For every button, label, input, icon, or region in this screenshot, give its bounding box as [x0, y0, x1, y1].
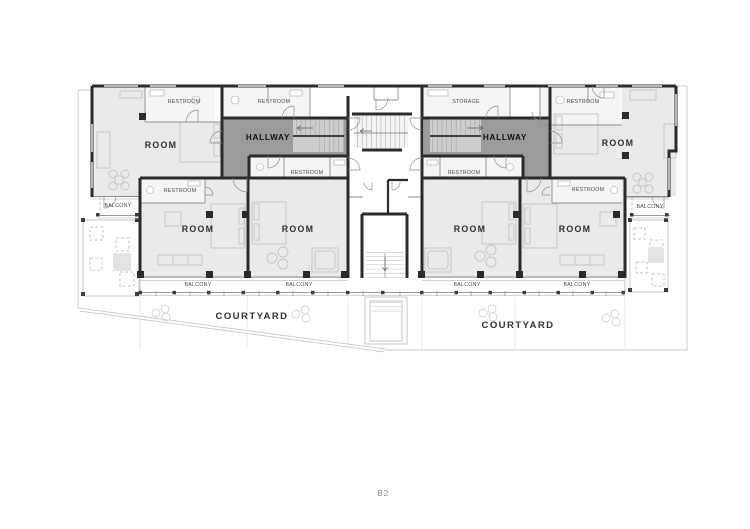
- room-label-top-right: ROOM: [602, 138, 635, 148]
- courtyard-label-left: COURTYARD: [215, 311, 288, 322]
- restroom-label-6: RESTROOM: [164, 188, 197, 194]
- restroom-label-7: RESTROOM: [572, 187, 605, 193]
- courtyard-steps: [365, 297, 407, 344]
- storage-label: STORAGE: [452, 99, 480, 105]
- restroom-label-5: RESTROOM: [448, 170, 481, 176]
- restroom-label-4: RESTROOM: [291, 170, 324, 176]
- balcony-label-a: BALCONY: [184, 282, 211, 288]
- restroom-label-2: RESTROOM: [258, 99, 291, 105]
- room-label-b: ROOM: [282, 224, 315, 234]
- balcony-label-b: BALCONY: [285, 282, 312, 288]
- balcony-label-left: BALCONY: [104, 203, 131, 209]
- room-label-top-left: ROOM: [145, 140, 178, 150]
- courtyard-label-right: COURTYARD: [481, 320, 554, 331]
- floor-label: B2: [377, 488, 389, 498]
- room-label-c: ROOM: [454, 224, 487, 234]
- room-label-d: ROOM: [559, 224, 592, 234]
- restroom-label-3: RESTROOM: [567, 99, 600, 105]
- floor-plan-page: RESTROOM RESTROOM STORAGE RESTROOM HALLW…: [0, 0, 750, 529]
- hallway-label-left: HALLWAY: [246, 133, 290, 142]
- hallway-label-right: HALLWAY: [483, 133, 527, 142]
- floor-plan-canvas: RESTROOM RESTROOM STORAGE RESTROOM HALLW…: [0, 0, 750, 529]
- balcony-label-d: BALCONY: [563, 282, 590, 288]
- balcony-label-c: BALCONY: [453, 282, 480, 288]
- room-label-a: ROOM: [182, 224, 215, 234]
- balcony-label-right: BALCONY: [636, 204, 663, 210]
- restroom-label-1: RESTROOM: [168, 99, 201, 105]
